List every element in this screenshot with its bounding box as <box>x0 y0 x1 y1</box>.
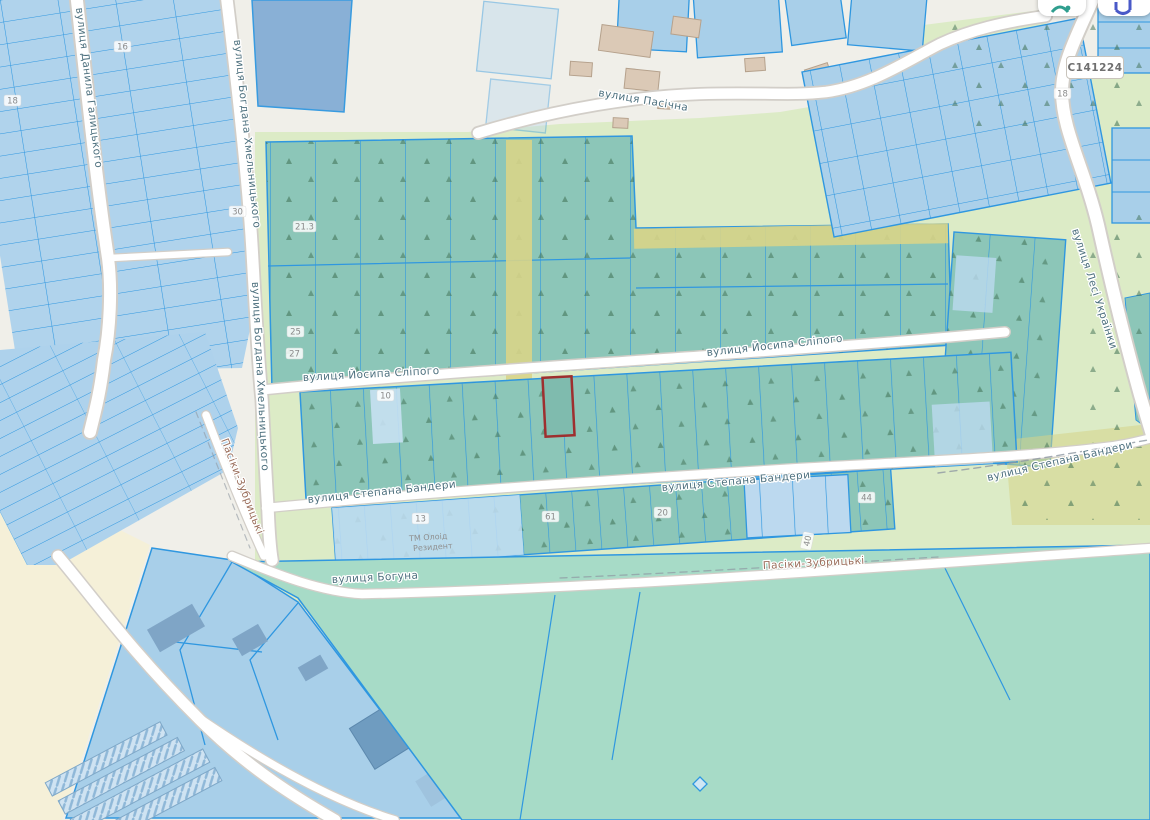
cadastral-map[interactable]: вулиця Пасічна вулиця Йосипа Сліпого вул… <box>0 0 1150 820</box>
map-canvas[interactable]: вулиця Пасічна вулиця Йосипа Сліпого вул… <box>0 0 1150 820</box>
parcel-highlighted-light[interactable] <box>953 255 997 313</box>
parcel-number: 18 <box>7 97 18 107</box>
poi-label: ТМ Олоід Резидент <box>408 531 454 553</box>
parcel-number: 16 <box>117 43 128 53</box>
parcel-number: 10 <box>380 392 391 402</box>
parcel-number: 18 <box>1057 90 1068 100</box>
parcel-number: 21.3 <box>295 223 314 233</box>
road-ref-badge: C141224 <box>1066 56 1124 79</box>
parcel-highlighted-dark[interactable] <box>252 0 352 112</box>
garden-lane <box>506 140 532 382</box>
parcel-number: 61 <box>545 513 556 523</box>
measure-icon <box>1038 0 1086 16</box>
parcel-number: 20 <box>657 509 668 519</box>
parcel-number: 44 <box>861 494 872 504</box>
layers-icon <box>1098 0 1150 16</box>
parcel-number: 25 <box>290 328 301 338</box>
parcel-number: 27 <box>289 350 300 360</box>
parcel-selected-red[interactable] <box>543 376 575 436</box>
parcel-number: 30 <box>232 208 243 218</box>
map-tool-button-2[interactable] <box>1098 0 1150 16</box>
map-tool-button-1[interactable] <box>1038 0 1086 16</box>
parcel-number: 13 <box>415 515 426 525</box>
